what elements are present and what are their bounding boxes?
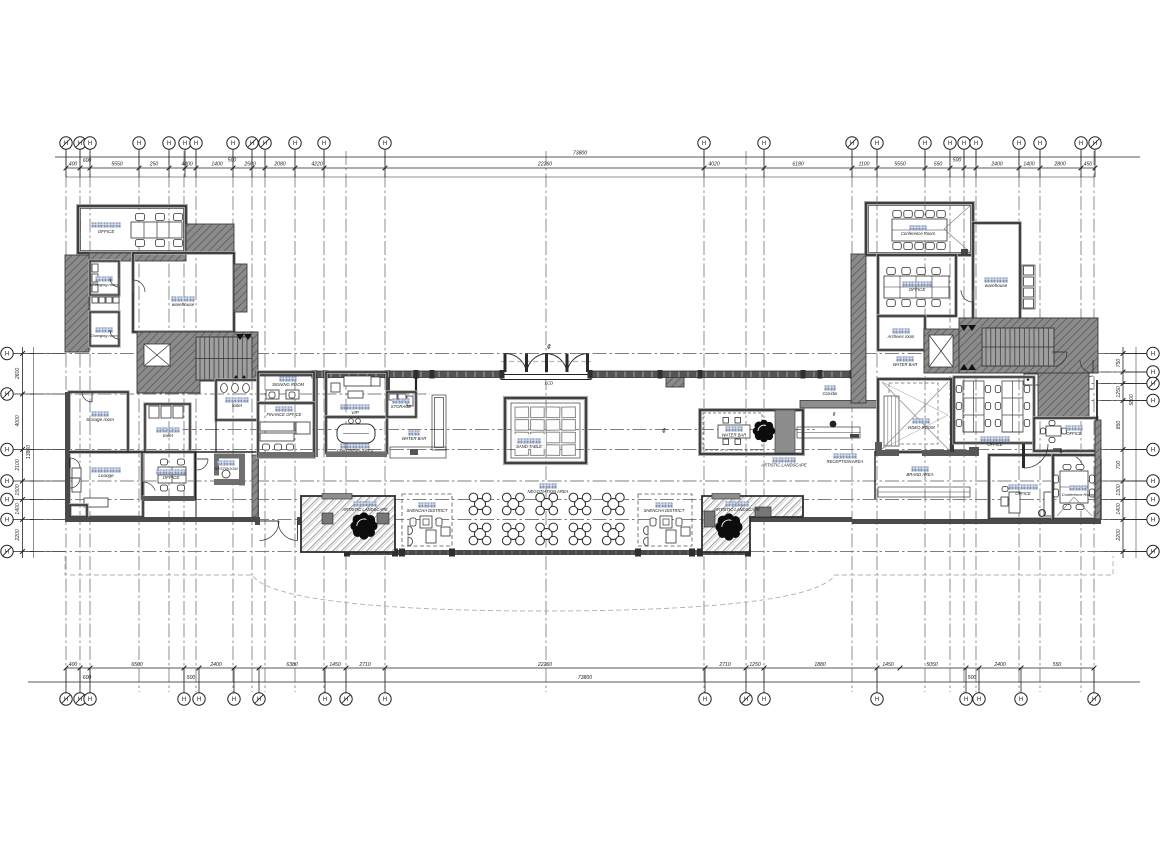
svg-text:1250: 1250	[1116, 386, 1122, 397]
svg-text:500: 500	[953, 158, 962, 164]
svg-text:6180: 6180	[792, 162, 803, 168]
svg-text:2710: 2710	[358, 662, 370, 668]
svg-text:OFFICE: OFFICE	[1066, 431, 1082, 436]
svg-text:FINANCE OFFICE: FINANCE OFFICE	[267, 412, 302, 417]
svg-text:Corridor: Corridor	[822, 391, 838, 396]
svg-text:H: H	[5, 498, 9, 504]
svg-text:4020: 4020	[708, 162, 719, 168]
svg-text:750: 750	[1116, 359, 1122, 368]
svg-text:2800: 2800	[1053, 162, 1065, 168]
svg-text:VIDEO ROOM: VIDEO ROOM	[907, 425, 935, 430]
svg-text:2080: 2080	[273, 162, 285, 168]
svg-text:Storage room: Storage room	[86, 417, 114, 422]
svg-text:H: H	[231, 141, 235, 147]
svg-text:H: H	[183, 141, 187, 147]
svg-text:73800: 73800	[578, 675, 592, 681]
svg-text:H: H	[5, 352, 9, 358]
svg-text:2200: 2200	[1116, 529, 1122, 541]
svg-text:H: H	[702, 141, 706, 147]
svg-text:400: 400	[69, 662, 78, 668]
svg-text:ARTISTIC LANDSCAPE: ARTISTIC LANDSCAPE	[341, 507, 388, 512]
svg-text:1400: 1400	[15, 503, 21, 514]
svg-text:H: H	[194, 141, 198, 147]
svg-text:4400: 4400	[181, 162, 192, 168]
svg-text:H: H	[88, 697, 92, 703]
svg-text:4220: 4220	[311, 162, 322, 168]
svg-text:SAND TABLE: SAND TABLE	[516, 444, 542, 449]
svg-text:1100: 1100	[859, 162, 870, 168]
svg-text:¢: ¢	[832, 412, 835, 418]
svg-text:H: H	[5, 518, 9, 524]
svg-text:2600: 2600	[15, 368, 21, 380]
svg-text:400: 400	[69, 162, 78, 168]
svg-text:H: H	[167, 141, 171, 147]
svg-text:toilet: toilet	[232, 403, 242, 408]
svg-text:5800: 5800	[1129, 394, 1135, 405]
svg-text:6380: 6380	[286, 662, 297, 668]
svg-text:OFFICE: OFFICE	[909, 287, 927, 292]
svg-text:5550: 5550	[111, 162, 122, 168]
svg-text:Conference Room: Conference Room	[1062, 492, 1095, 497]
svg-text:H: H	[137, 141, 141, 147]
svg-text:H: H	[5, 479, 9, 485]
svg-text:¢: ¢	[662, 428, 666, 435]
svg-text:4000: 4000	[15, 415, 21, 426]
svg-text:H: H	[1151, 370, 1155, 376]
svg-text:22260: 22260	[537, 162, 552, 168]
svg-text:500: 500	[187, 675, 196, 681]
svg-text:1450: 1450	[882, 662, 893, 668]
svg-text:OFFICE: OFFICE	[987, 442, 1003, 447]
svg-text:H: H	[383, 141, 387, 147]
svg-text:SHENCHA DISTRICT: SHENCHA DISTRICT	[407, 508, 448, 513]
svg-text:WATER BAR: WATER BAR	[402, 436, 427, 441]
svg-text:550: 550	[934, 162, 943, 168]
svg-text:2710: 2710	[718, 662, 730, 668]
svg-text:H: H	[974, 141, 978, 147]
svg-text:H: H	[762, 697, 766, 703]
svg-text:5050: 5050	[926, 662, 937, 668]
svg-text:H: H	[232, 697, 236, 703]
svg-text:1450: 1450	[329, 662, 340, 668]
svg-text:OFFICE: OFFICE	[1015, 491, 1031, 496]
svg-text:1400: 1400	[211, 162, 222, 168]
svg-text:H: H	[182, 697, 186, 703]
svg-text:450: 450	[1084, 162, 1093, 168]
svg-text:73800: 73800	[573, 151, 587, 157]
svg-text:WATER BAR: WATER BAR	[893, 362, 918, 367]
svg-text:H: H	[383, 697, 387, 703]
svg-text:warehouse: warehouse	[172, 302, 195, 307]
svg-text:500: 500	[968, 675, 977, 681]
svg-text:H: H	[323, 697, 327, 703]
svg-text:Lounge: Lounge	[98, 473, 114, 478]
svg-text:22260: 22260	[537, 662, 552, 668]
svg-text:¢: ¢	[547, 342, 551, 351]
svg-text:toilet: toilet	[163, 433, 173, 438]
svg-text:H: H	[1151, 399, 1155, 405]
svg-text:2200: 2200	[15, 529, 21, 541]
svg-text:H: H	[322, 141, 326, 147]
svg-text:H: H	[923, 141, 927, 147]
svg-text:500: 500	[228, 158, 237, 164]
svg-text:700: 700	[1116, 461, 1122, 470]
svg-text:2400: 2400	[993, 662, 1005, 668]
svg-text:2400: 2400	[990, 162, 1002, 168]
svg-text:BRAND AREA: BRAND AREA	[906, 472, 933, 477]
svg-text:H: H	[1151, 352, 1155, 358]
svg-text:OFFICE: OFFICE	[98, 229, 116, 234]
svg-text:H: H	[1151, 518, 1155, 524]
svg-text:SIGNING ROOM: SIGNING ROOM	[272, 382, 304, 387]
svg-text:2400: 2400	[209, 662, 221, 668]
svg-text:H: H	[1019, 697, 1023, 703]
svg-text:SHENCHA DISTRICT: SHENCHA DISTRICT	[644, 508, 685, 513]
svg-text:H: H	[703, 697, 707, 703]
svg-text:Archives room: Archives room	[887, 334, 915, 339]
svg-text:NEGOTIATION AREA: NEGOTIATION AREA	[528, 489, 569, 494]
svg-text:H: H	[948, 141, 952, 147]
svg-text:1400: 1400	[1116, 503, 1122, 514]
svg-text:H: H	[875, 697, 879, 703]
svg-text:1300: 1300	[1116, 484, 1122, 495]
svg-text:H: H	[762, 141, 766, 147]
svg-text:H: H	[977, 697, 981, 703]
svg-text:H: H	[1151, 498, 1155, 504]
svg-text:850: 850	[1116, 421, 1122, 430]
svg-text:H: H	[88, 141, 92, 147]
svg-text:VIP: VIP	[351, 410, 359, 415]
svg-text:H: H	[964, 697, 968, 703]
svg-text:ARTISTIC LANDSCAPE: ARTISTIC LANDSCAPE	[713, 507, 760, 512]
svg-text:5550: 5550	[894, 162, 905, 168]
svg-text:H: H	[197, 697, 201, 703]
svg-text:Changing room: Changing room	[90, 282, 118, 287]
svg-text:H: H	[1079, 141, 1083, 147]
svg-text:250: 250	[149, 162, 159, 168]
svg-text:550: 550	[1053, 662, 1062, 668]
svg-text:RESTROOM: RESTROOM	[214, 466, 238, 471]
svg-text:1400: 1400	[1023, 162, 1034, 168]
svg-text:Conference Room: Conference Room	[901, 231, 935, 236]
svg-text:LCD: LCD	[545, 381, 553, 386]
svg-text:ARTISTIC LANDSCAPE: ARTISTIC LANDSCAPE	[760, 463, 807, 468]
svg-text:H: H	[962, 141, 966, 147]
svg-text:RECEPTION AREA: RECEPTION AREA	[827, 459, 864, 464]
svg-text:13800: 13800	[26, 445, 32, 459]
svg-text:H: H	[1151, 448, 1155, 454]
svg-text:2500: 2500	[243, 162, 255, 168]
svg-text:warehouse: warehouse	[985, 283, 1008, 288]
svg-text:6500: 6500	[131, 662, 142, 668]
svg-text:STORAGE: STORAGE	[391, 404, 412, 409]
svg-text:H: H	[1038, 141, 1042, 147]
svg-text:H: H	[1017, 141, 1021, 147]
svg-text:1250: 1250	[749, 662, 760, 668]
svg-text:H: H	[5, 448, 9, 454]
svg-text:OFFICE: OFFICE	[163, 475, 181, 480]
svg-text:2100: 2100	[15, 459, 21, 471]
svg-text:H: H	[293, 141, 297, 147]
svg-text:WATER BAR: WATER BAR	[722, 433, 747, 438]
svg-text:H: H	[1151, 479, 1155, 485]
svg-text:H: H	[875, 141, 879, 147]
svg-text:1880: 1880	[814, 662, 825, 668]
svg-text:1500: 1500	[15, 484, 21, 495]
